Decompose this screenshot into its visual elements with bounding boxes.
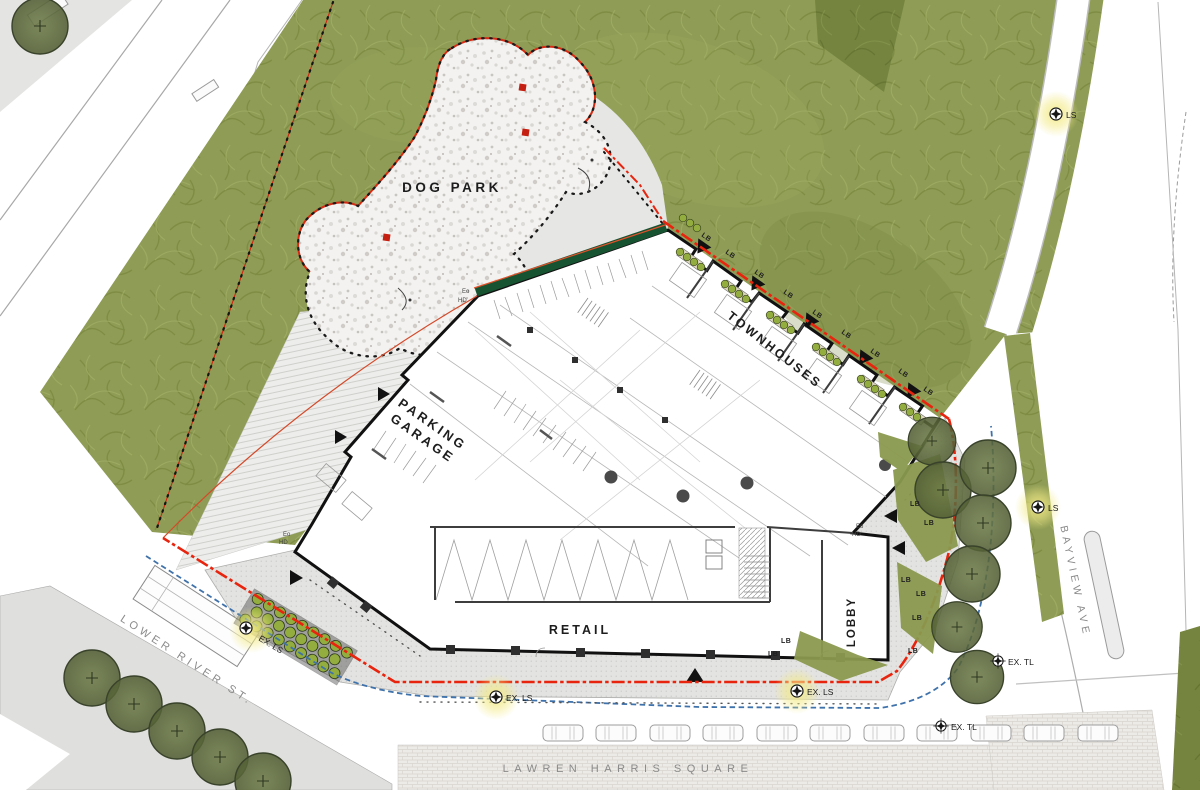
svg-text:LS: LS <box>1066 110 1077 120</box>
light-standard-icon <box>490 691 502 703</box>
light-standard-icon <box>1032 501 1044 513</box>
lawren-harris-square-label: LAWREN HARRIS SQUARE <box>503 763 754 775</box>
dog-park-label: DOG PARK <box>402 180 502 195</box>
svg-text:LB: LB <box>908 648 918 655</box>
svg-text:LB: LB <box>768 651 778 658</box>
svg-text:HD: HD <box>279 540 288 546</box>
svg-text:Eo: Eo <box>856 524 864 530</box>
svg-text:Eo: Eo <box>462 289 470 295</box>
svg-text:EX. TL: EX. TL <box>1008 657 1034 667</box>
svg-text:EX. TL: EX. TL <box>951 722 977 732</box>
svg-text:HD: HD <box>852 532 861 538</box>
site-plan-drawing: DOG PARK PARKING GARAGE TOWNHOUSES RETAI… <box>0 0 1200 790</box>
svg-text:LS: LS <box>1048 503 1059 513</box>
retail-label: RETAIL <box>549 623 611 637</box>
svg-text:LB: LB <box>901 577 911 584</box>
site-plan: DOG PARK PARKING GARAGE TOWNHOUSES RETAI… <box>0 0 1200 790</box>
svg-text:LB: LB <box>912 615 922 622</box>
svg-text:LB: LB <box>924 520 934 527</box>
svg-text:LB: LB <box>916 591 926 598</box>
svg-text:EX. LS: EX. LS <box>506 693 533 703</box>
light-standard-icon <box>240 622 252 634</box>
svg-text:LB: LB <box>781 638 791 645</box>
svg-text:Eo: Eo <box>283 532 291 538</box>
parked-cars <box>543 725 1118 741</box>
svg-text:EX. LS: EX. LS <box>807 687 834 697</box>
street-tree <box>12 0 68 54</box>
light-standard-icon <box>1050 108 1062 120</box>
light-standard-icon <box>791 685 803 697</box>
lobby-label: LOBBY <box>846 597 858 647</box>
svg-text:LB: LB <box>910 501 920 508</box>
svg-text:HD: HD <box>458 298 467 304</box>
